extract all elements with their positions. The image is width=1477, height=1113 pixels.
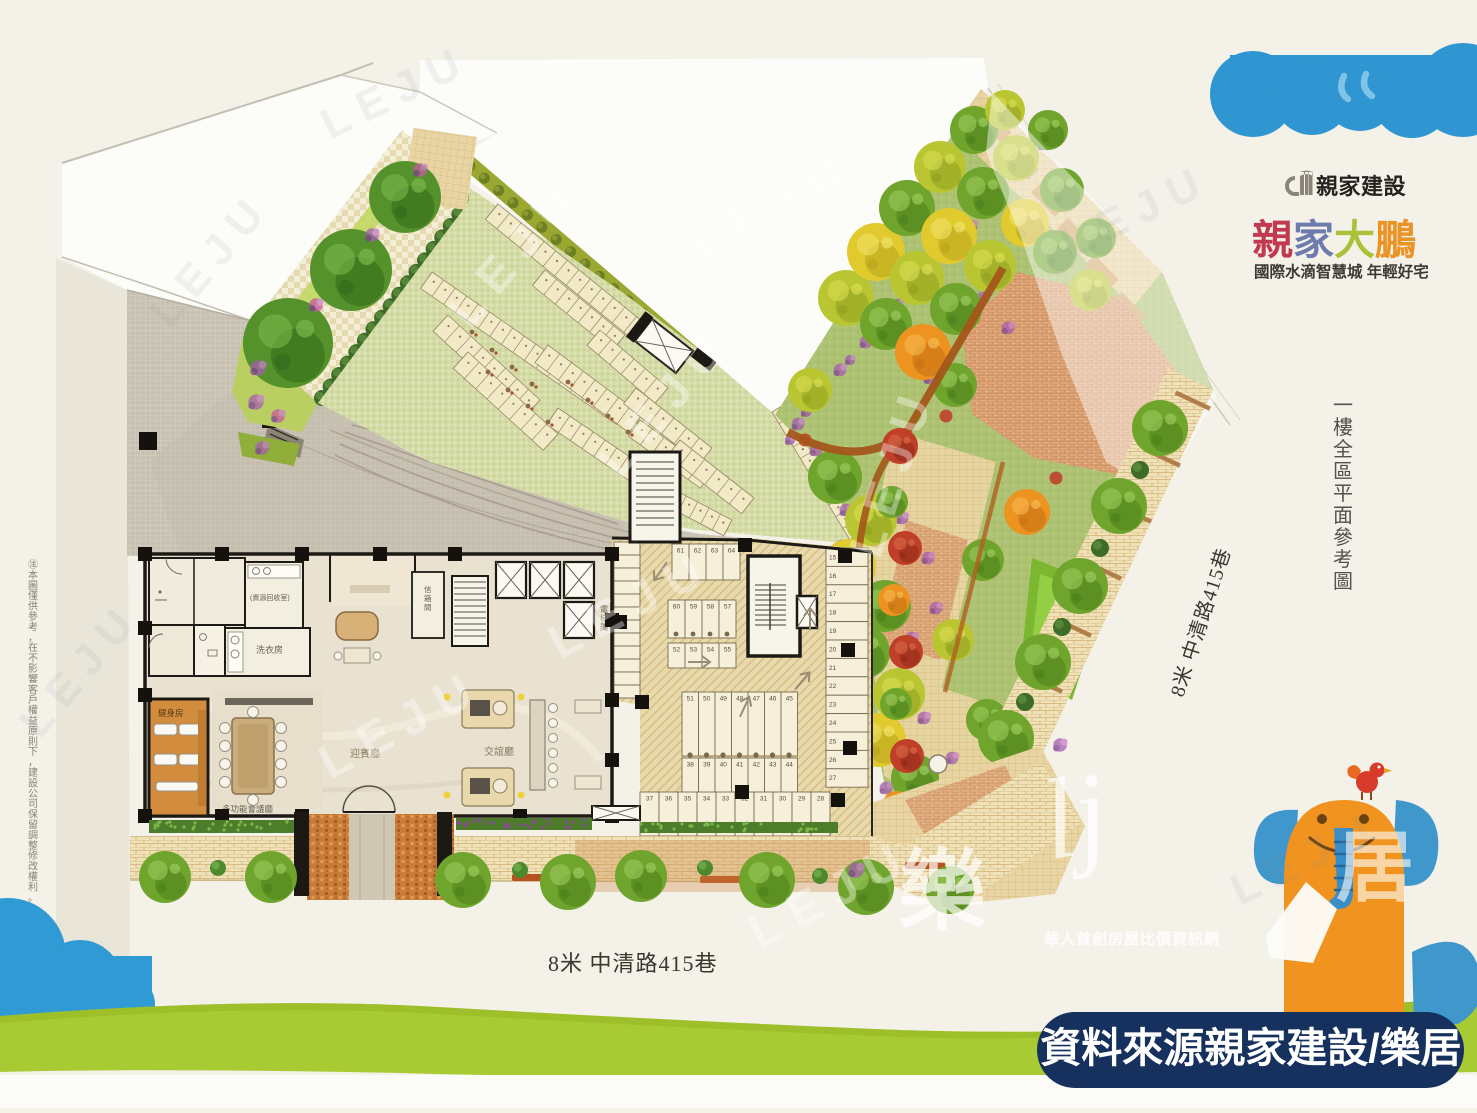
svg-text:47: 47 <box>753 696 761 703</box>
svg-text:21: 21 <box>829 665 837 672</box>
svg-text:整: 整 <box>28 839 38 852</box>
svg-text:64: 64 <box>728 548 736 555</box>
svg-text:設: 設 <box>28 776 38 789</box>
svg-text:利: 利 <box>28 881 38 893</box>
svg-text:全: 全 <box>1333 438 1353 461</box>
svg-text:權: 權 <box>28 870 38 883</box>
svg-text:不: 不 <box>28 654 38 665</box>
svg-text:59: 59 <box>690 604 698 611</box>
svg-text:15: 15 <box>829 554 837 561</box>
svg-text:39: 39 <box>703 762 711 769</box>
svg-text:本: 本 <box>28 568 38 581</box>
svg-text:親家大鵬: 親家大鵬 <box>1252 217 1416 263</box>
svg-text:區: 區 <box>1333 461 1353 483</box>
svg-text:25: 25 <box>829 738 837 745</box>
svg-text:僅: 僅 <box>28 589 38 602</box>
svg-text:45: 45 <box>786 696 794 703</box>
svg-text:46: 46 <box>769 696 777 703</box>
svg-text:55: 55 <box>724 647 732 654</box>
svg-text:23: 23 <box>829 702 837 709</box>
svg-text:資料來源親家建設/樂居: 資料來源親家建設/樂居 <box>1040 1025 1461 1071</box>
svg-text:圖: 圖 <box>1333 571 1353 593</box>
svg-text:37: 37 <box>646 796 654 803</box>
svg-text:，: ， <box>28 633 38 644</box>
svg-text:華人首創房屋比價資訊網: 華人首創房屋比價資訊網 <box>1044 930 1220 948</box>
svg-text:間: 間 <box>424 603 432 612</box>
svg-text:40: 40 <box>720 762 728 769</box>
svg-text:30: 30 <box>779 796 787 803</box>
svg-text:33: 33 <box>722 796 730 803</box>
svg-text:考: 考 <box>28 621 38 633</box>
svg-text:24: 24 <box>829 720 837 727</box>
svg-text:考: 考 <box>1333 548 1353 571</box>
svg-text:57: 57 <box>724 604 732 611</box>
svg-text:圖: 圖 <box>28 580 38 592</box>
svg-text:㊟: ㊟ <box>28 559 38 571</box>
svg-text:54: 54 <box>707 647 715 654</box>
svg-text:改: 改 <box>28 860 38 873</box>
svg-text:18: 18 <box>829 610 837 617</box>
svg-text:下: 下 <box>28 747 38 758</box>
svg-text:27: 27 <box>829 775 837 782</box>
svg-text:17: 17 <box>829 591 837 598</box>
svg-text:交誼廳: 交誼廳 <box>484 745 514 758</box>
svg-text:多功能會議廳: 多功能會議廳 <box>222 804 274 814</box>
svg-text:35: 35 <box>684 796 692 803</box>
svg-text:29: 29 <box>798 796 806 803</box>
svg-text:52: 52 <box>673 647 681 654</box>
svg-text:22: 22 <box>829 683 837 690</box>
svg-text:19: 19 <box>829 628 837 635</box>
svg-text:31: 31 <box>760 796 768 803</box>
svg-text:國際水滴智慧城 年輕好宅: 國際水滴智慧城 年輕好宅 <box>1254 262 1429 281</box>
svg-text:一: 一 <box>1333 395 1353 417</box>
svg-text:箱: 箱 <box>424 593 432 603</box>
svg-text:留: 留 <box>28 818 38 831</box>
svg-text:修: 修 <box>28 849 38 862</box>
svg-text:26: 26 <box>829 757 837 764</box>
svg-text:洗衣房: 洗衣房 <box>256 644 283 655</box>
svg-text:參: 參 <box>1333 526 1353 549</box>
svg-text:44: 44 <box>786 762 794 769</box>
svg-text:調: 調 <box>28 828 38 841</box>
svg-text:面: 面 <box>1333 505 1353 527</box>
svg-text:平: 平 <box>1333 483 1353 505</box>
svg-text:建: 建 <box>28 766 38 779</box>
svg-text:影: 影 <box>28 663 38 675</box>
svg-text:36: 36 <box>665 796 673 803</box>
svg-text:49: 49 <box>720 696 728 703</box>
svg-text:保: 保 <box>28 808 38 821</box>
svg-text:28: 28 <box>817 796 825 803</box>
svg-text:健身房: 健身房 <box>158 708 184 718</box>
svg-text:20: 20 <box>829 646 837 653</box>
svg-text:16: 16 <box>829 573 837 580</box>
svg-text:在: 在 <box>28 642 38 654</box>
svg-text:樂: 樂 <box>898 842 987 941</box>
svg-text:43: 43 <box>769 762 777 769</box>
svg-text:樓: 樓 <box>1333 416 1353 439</box>
svg-text:信: 信 <box>424 584 432 594</box>
svg-text:41: 41 <box>736 762 744 769</box>
svg-text:參: 參 <box>28 610 38 623</box>
svg-text:38: 38 <box>687 762 695 769</box>
svg-text:8米 中清路415巷: 8米 中清路415巷 <box>548 951 718 976</box>
svg-text:58: 58 <box>707 604 715 611</box>
svg-text:(資源回收室): (資源回收室) <box>250 593 290 602</box>
svg-text:公: 公 <box>28 789 38 800</box>
svg-text:63: 63 <box>711 548 719 555</box>
svg-text:42: 42 <box>753 762 761 769</box>
svg-text:51: 51 <box>687 696 695 703</box>
svg-text:居: 居 <box>1336 823 1414 911</box>
svg-text:供: 供 <box>28 600 38 613</box>
svg-text:34: 34 <box>703 796 711 803</box>
svg-text:司: 司 <box>28 799 38 810</box>
svg-text:，: ， <box>28 758 38 769</box>
svg-text:親家建設: 親家建設 <box>1316 174 1407 199</box>
svg-text:53: 53 <box>690 647 698 654</box>
svg-text:50: 50 <box>703 696 711 703</box>
